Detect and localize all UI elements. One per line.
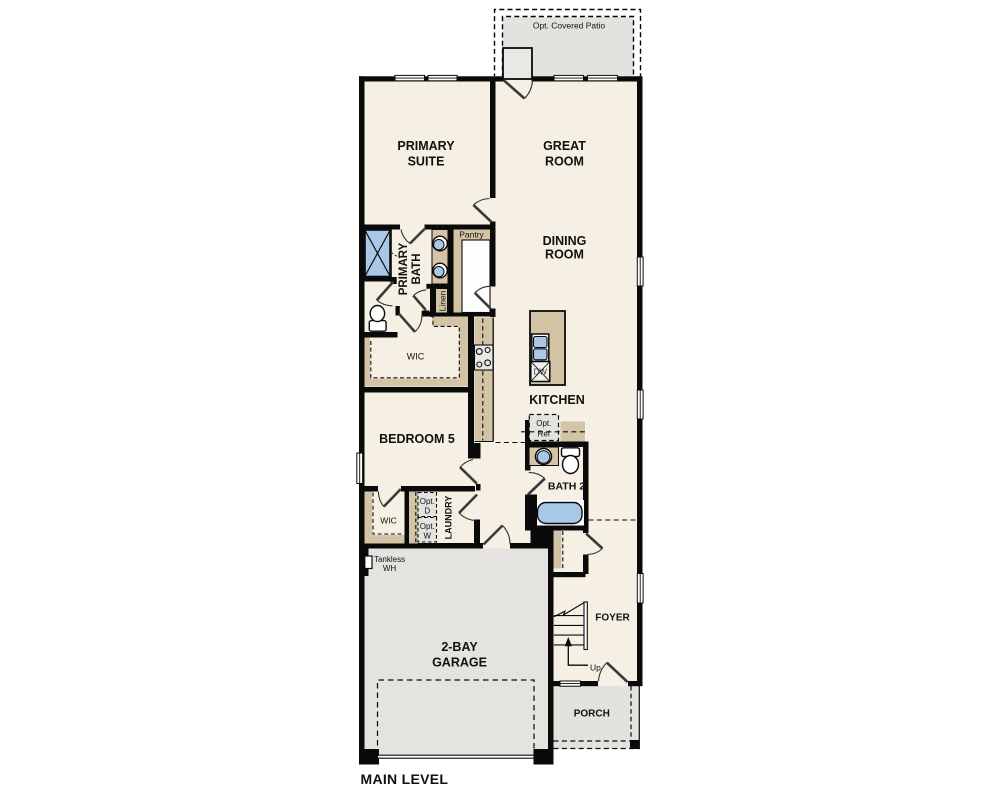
svg-text:DINING: DINING [543,234,587,248]
svg-text:PORCH: PORCH [574,709,610,720]
svg-text:WH: WH [383,564,397,573]
svg-text:KITCHEN: KITCHEN [529,393,585,407]
svg-text:Linen: Linen [438,290,448,311]
svg-text:GARAGE: GARAGE [432,656,487,670]
svg-text:Pantry: Pantry [459,230,484,240]
svg-text:WIC: WIC [380,516,397,526]
svg-text:SUITE: SUITE [408,155,445,169]
svg-text:LAUNDRY: LAUNDRY [444,496,454,540]
svg-text:ROOM: ROOM [545,155,584,169]
svg-text:DW: DW [534,368,548,377]
svg-text:W: W [424,532,432,541]
svg-text:GREAT: GREAT [543,139,586,153]
svg-text:Opt.: Opt. [420,522,435,531]
svg-text:ROOM: ROOM [545,248,584,262]
svg-text:2-BAY: 2-BAY [441,640,478,654]
svg-text:D: D [424,507,430,516]
svg-text:WIC: WIC [407,352,425,362]
svg-text:FOYER: FOYER [595,613,630,624]
svg-text:MAIN LEVEL: MAIN LEVEL [361,771,449,787]
svg-text:BATH 2: BATH 2 [548,481,585,493]
svg-text:PRIMARY: PRIMARY [398,242,410,295]
svg-text:Tankless: Tankless [374,555,405,564]
svg-text:Opt.: Opt. [536,419,551,428]
svg-text:BATH: BATH [411,253,423,284]
svg-text:PRIMARY: PRIMARY [397,139,455,153]
svg-text:Opt. Covered Patio: Opt. Covered Patio [533,21,606,31]
svg-text:Opt.: Opt. [420,497,435,506]
svg-text:Up: Up [590,663,601,673]
svg-text:Ref: Ref [538,430,551,439]
svg-text:BEDROOM 5: BEDROOM 5 [379,432,455,446]
